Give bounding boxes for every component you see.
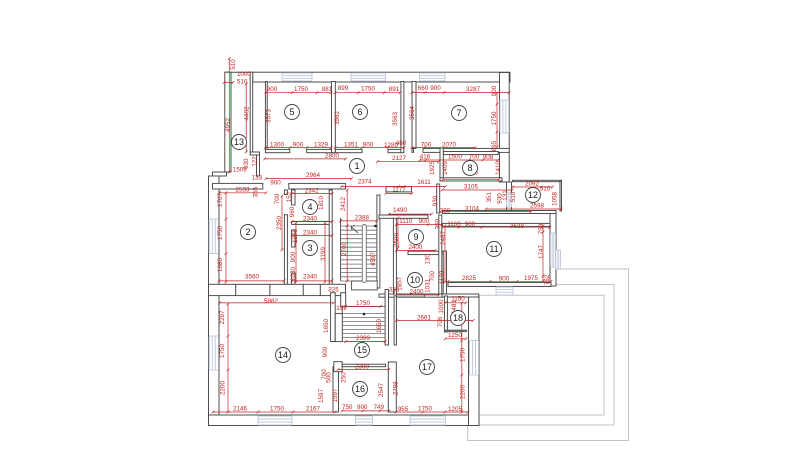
svg-text:500: 500: [326, 372, 333, 383]
svg-text:900: 900: [491, 85, 498, 96]
svg-text:2547: 2547: [378, 383, 385, 397]
svg-text:15: 15: [357, 345, 367, 355]
svg-text:3564: 3564: [409, 106, 416, 120]
svg-text:1500: 1500: [448, 154, 462, 161]
svg-text:2825: 2825: [462, 275, 476, 282]
svg-text:3573: 3573: [265, 109, 272, 123]
svg-text:750: 750: [342, 404, 353, 411]
svg-text:2200: 2200: [460, 385, 467, 399]
svg-text:2533: 2533: [236, 186, 250, 193]
svg-text:1409: 1409: [442, 161, 449, 175]
svg-text:1351: 1351: [344, 141, 358, 148]
svg-text:900: 900: [419, 218, 430, 225]
svg-text:1410: 1410: [495, 161, 502, 175]
svg-text:360: 360: [435, 218, 442, 229]
svg-text:416: 416: [420, 154, 431, 161]
svg-text:1750: 1750: [356, 300, 370, 307]
svg-text:4402: 4402: [244, 106, 251, 120]
svg-text:2342: 2342: [305, 187, 319, 194]
svg-text:900: 900: [465, 221, 476, 228]
svg-text:1750: 1750: [460, 348, 467, 362]
svg-text:4952: 4952: [225, 118, 232, 132]
svg-text:2167: 2167: [306, 405, 320, 412]
svg-text:1030: 1030: [290, 267, 297, 281]
svg-text:1750: 1750: [219, 344, 226, 358]
svg-text:355: 355: [253, 186, 260, 197]
svg-text:2399: 2399: [355, 364, 369, 371]
svg-text:900: 900: [430, 85, 441, 92]
svg-text:1490: 1490: [393, 207, 407, 214]
svg-text:2400: 2400: [408, 244, 422, 251]
svg-text:17: 17: [422, 362, 432, 372]
svg-text:2661: 2661: [417, 315, 431, 322]
svg-text:6: 6: [357, 107, 362, 117]
svg-text:700: 700: [429, 271, 436, 282]
svg-text:9: 9: [413, 232, 418, 242]
svg-text:11: 11: [489, 244, 498, 254]
svg-text:14: 14: [278, 350, 288, 360]
svg-text:2800: 2800: [325, 152, 339, 159]
svg-text:2964: 2964: [306, 172, 320, 179]
svg-text:13: 13: [234, 137, 244, 147]
svg-text:1058: 1058: [552, 192, 559, 206]
svg-text:460: 460: [396, 140, 407, 147]
svg-text:4: 4: [307, 202, 312, 212]
svg-text:2127: 2127: [392, 155, 406, 162]
svg-text:758: 758: [538, 223, 545, 234]
svg-text:1597: 1597: [332, 388, 339, 402]
svg-text:1300: 1300: [270, 141, 284, 148]
svg-text:2340: 2340: [303, 216, 317, 223]
svg-text:2374: 2374: [358, 178, 372, 185]
svg-text:1: 1: [354, 161, 359, 171]
svg-text:2700: 2700: [341, 242, 348, 256]
svg-text:900: 900: [357, 404, 368, 411]
svg-text:133: 133: [252, 175, 263, 182]
svg-text:510: 510: [510, 191, 517, 202]
svg-text:1857: 1857: [397, 276, 404, 290]
svg-text:1250: 1250: [448, 332, 462, 339]
svg-text:706: 706: [437, 316, 444, 327]
svg-text:900: 900: [290, 251, 297, 262]
svg-text:1650: 1650: [376, 319, 383, 333]
svg-text:1810: 1810: [318, 196, 325, 210]
svg-text:955: 955: [398, 406, 409, 413]
svg-text:960: 960: [289, 206, 296, 217]
svg-text:1925: 1925: [429, 161, 436, 175]
svg-text:1133: 1133: [439, 270, 446, 284]
svg-text:930: 930: [497, 193, 504, 204]
svg-text:510: 510: [237, 79, 248, 86]
svg-text:1680: 1680: [217, 258, 224, 272]
svg-text:2500: 2500: [393, 233, 400, 247]
svg-text:1160: 1160: [447, 221, 461, 228]
svg-text:1747: 1747: [538, 245, 545, 259]
svg-text:130: 130: [424, 254, 431, 265]
svg-text:1611: 1611: [417, 179, 431, 186]
svg-text:510: 510: [540, 186, 551, 193]
svg-text:3105: 3105: [464, 184, 478, 191]
svg-text:895: 895: [491, 140, 498, 151]
svg-text:3104: 3104: [465, 206, 479, 213]
svg-text:3199: 3199: [320, 247, 327, 261]
svg-text:2: 2: [245, 227, 250, 237]
svg-text:762: 762: [544, 274, 551, 285]
svg-text:1110: 1110: [399, 218, 413, 225]
svg-text:1205: 1205: [448, 406, 462, 413]
svg-text:2412: 2412: [340, 197, 347, 211]
svg-text:3562: 3562: [334, 111, 341, 125]
svg-text:2399: 2399: [356, 335, 370, 342]
svg-text:660: 660: [418, 85, 429, 92]
svg-text:16: 16: [355, 384, 365, 394]
svg-text:12: 12: [528, 190, 538, 200]
svg-text:2487: 2487: [440, 231, 447, 245]
svg-text:2798: 2798: [393, 381, 400, 395]
svg-text:2400: 2400: [410, 289, 424, 296]
svg-text:2070: 2070: [442, 141, 456, 148]
svg-text:900: 900: [293, 141, 304, 148]
svg-text:7: 7: [456, 108, 461, 118]
svg-text:881: 881: [322, 86, 333, 93]
svg-text:510: 510: [230, 59, 237, 70]
svg-text:5: 5: [289, 107, 294, 117]
svg-text:900: 900: [499, 275, 510, 282]
svg-text:8: 8: [467, 163, 472, 173]
svg-text:3560: 3560: [245, 274, 259, 281]
svg-text:351: 351: [486, 191, 493, 202]
svg-text:700: 700: [469, 154, 480, 161]
svg-text:2598: 2598: [530, 202, 544, 209]
svg-text:18: 18: [453, 313, 463, 323]
svg-text:3287: 3287: [466, 86, 480, 93]
svg-text:700: 700: [274, 193, 281, 204]
svg-text:900: 900: [363, 142, 374, 149]
svg-text:10: 10: [410, 275, 420, 285]
svg-text:1707: 1707: [217, 193, 224, 207]
svg-text:900: 900: [270, 180, 281, 187]
svg-text:3638: 3638: [510, 223, 524, 230]
svg-text:2350: 2350: [276, 216, 283, 230]
svg-text:2200: 2200: [220, 381, 227, 395]
svg-text:1750: 1750: [491, 111, 498, 125]
svg-text:1750: 1750: [270, 405, 284, 412]
svg-text:152: 152: [286, 191, 293, 202]
svg-text:388: 388: [440, 208, 451, 215]
svg-text:2146: 2146: [233, 406, 247, 413]
svg-text:2340: 2340: [303, 230, 317, 237]
svg-text:930: 930: [243, 158, 250, 169]
svg-text:900: 900: [267, 86, 278, 93]
svg-text:199: 199: [336, 305, 347, 312]
svg-text:930: 930: [432, 195, 439, 206]
svg-text:749: 749: [374, 404, 385, 411]
svg-text:3: 3: [307, 243, 312, 253]
svg-text:1177: 1177: [392, 187, 406, 194]
svg-text:1650: 1650: [323, 319, 330, 333]
svg-text:1750: 1750: [361, 86, 375, 93]
svg-text:5862: 5862: [264, 298, 278, 305]
svg-text:1000: 1000: [237, 71, 251, 78]
svg-text:1597: 1597: [318, 389, 325, 403]
svg-text:3563: 3563: [392, 112, 399, 126]
svg-text:122: 122: [252, 156, 259, 167]
svg-text:700: 700: [421, 141, 432, 148]
svg-text:2297: 2297: [219, 310, 226, 324]
svg-text:899: 899: [338, 85, 349, 92]
svg-text:2340: 2340: [303, 274, 317, 281]
svg-text:1750: 1750: [294, 86, 308, 93]
svg-text:1750: 1750: [217, 226, 224, 240]
svg-text:2092: 2092: [525, 181, 539, 188]
svg-text:1000: 1000: [438, 299, 445, 313]
svg-text:1270: 1270: [292, 229, 299, 243]
svg-text:1975: 1975: [524, 275, 538, 282]
svg-text:325: 325: [328, 286, 339, 293]
svg-text:4597: 4597: [370, 252, 377, 266]
svg-text:2388: 2388: [355, 215, 369, 222]
svg-text:1750: 1750: [418, 405, 432, 412]
svg-text:891: 891: [389, 86, 400, 93]
svg-text:1329: 1329: [314, 142, 328, 149]
svg-text:908: 908: [483, 154, 494, 161]
svg-text:900: 900: [322, 346, 329, 357]
svg-text:250: 250: [341, 372, 348, 383]
